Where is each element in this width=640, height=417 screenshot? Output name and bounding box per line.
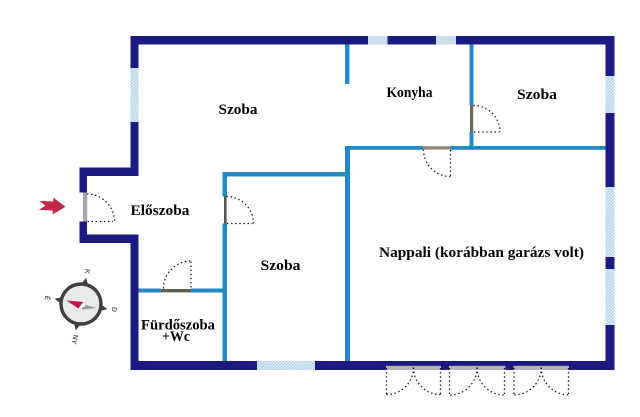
svg-text:+Wc: +Wc bbox=[162, 329, 190, 345]
svg-text:Előszoba: Előszoba bbox=[131, 203, 191, 219]
svg-text:Szoba: Szoba bbox=[261, 258, 302, 274]
svg-text:Szoba: Szoba bbox=[219, 102, 259, 118]
svg-text:Nappali (korábban garázs volt): Nappali (korábban garázs volt) bbox=[379, 245, 584, 261]
svg-text:Konyha: Konyha bbox=[387, 85, 433, 101]
svg-text:Szoba: Szoba bbox=[517, 87, 558, 103]
